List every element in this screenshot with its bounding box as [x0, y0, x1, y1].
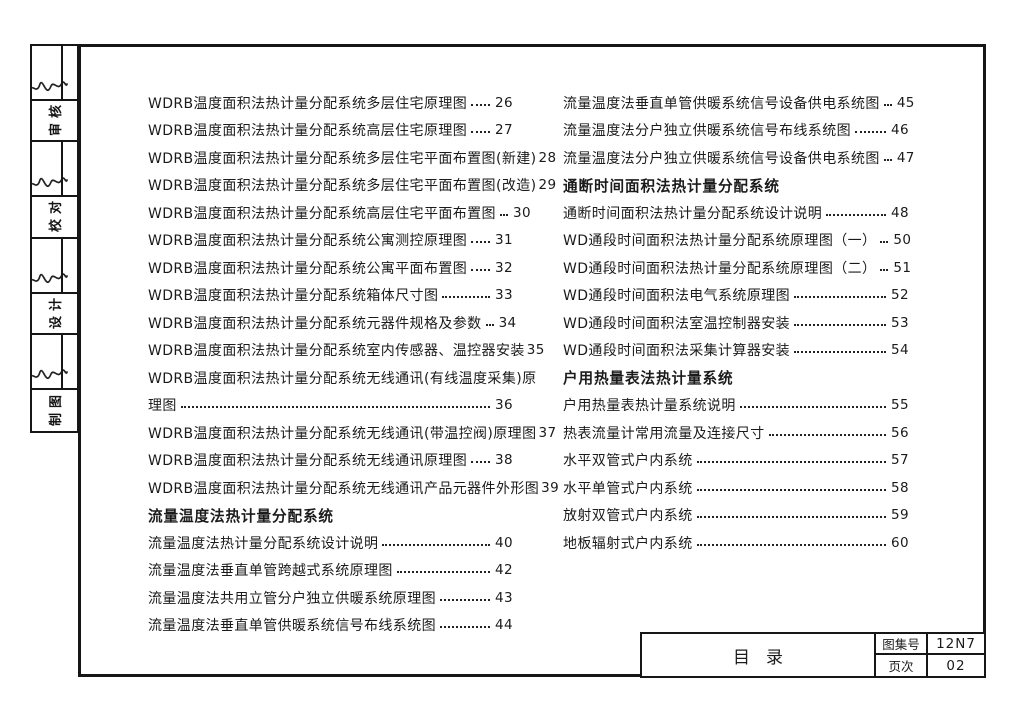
toc-page-number: 44 [493, 617, 513, 633]
stamp-cell [32, 335, 77, 390]
toc-row: WDRB温度面积法热计量分配系统公寓测控原理图 31 [148, 227, 513, 255]
toc-entry-title: WDRB温度面积法热计量分配系统公寓测控原理图 [148, 230, 467, 250]
toc-row: 流量温度法垂直单管供暖系统信号布线系统图 44 [148, 612, 513, 640]
dot-leader [855, 131, 886, 133]
toc-row: WD通段时间面积法室温控制器安装 53 [563, 309, 909, 337]
toc-entry-title: WDRB温度面积法热计量分配系统室内传感器、温控器安装 [148, 340, 525, 360]
dot-leader [884, 104, 892, 106]
toc-row: 流量温度法分户独立供暖系统信号布线系统图 46 [563, 117, 909, 145]
dot-leader [884, 159, 892, 161]
dot-leader [794, 324, 886, 326]
toc-entry-title: 流量温度法垂直单管跨越式系统原理图 [148, 560, 393, 580]
toc-row: 流量温度法热计量分配系统 [148, 502, 513, 530]
dot-leader [697, 516, 886, 518]
toc-entry-title: WDRB温度面积法热计量分配系统无线通讯(有线温度采集)原 [148, 368, 536, 388]
handwritten-signature [32, 252, 69, 278]
dot-leader [794, 351, 886, 353]
toc-column-right: 流量温度法垂直单管供暖系统信号设备供电系统图 45 流量温度法分户独立供暖系统信… [563, 89, 909, 557]
toc-row: 流量温度法垂直单管供暖系统信号设备供电系统图 45 [563, 89, 909, 117]
toc-row: WDRB温度面积法热计量分配系统无线通讯原理图 38 [148, 447, 513, 475]
atlas-number-value: 12N7 [928, 634, 984, 655]
dot-leader [697, 461, 886, 463]
toc-row: 户用热量表法热计量系统 [563, 364, 909, 392]
toc-entry-title: WDRB温度面积法热计量分配系统多层住宅平面布置图(改造) [148, 175, 536, 195]
dot-leader [471, 131, 490, 133]
toc-page-number: 35 [525, 342, 545, 358]
toc-entry-title: WDRB温度面积法热计量分配系统箱体尺寸图 [148, 285, 438, 305]
toc-row: 通断时间面积法热计量分配系统 [563, 172, 909, 200]
dot-leader [880, 269, 888, 271]
toc-page-number: 50 [891, 232, 911, 248]
dot-leader [500, 214, 508, 216]
toc-row: WD通段时间面积法采集计算器安装 54 [563, 337, 909, 365]
toc-row: 流量温度法共用立管分户独立供暖系统原理图 43 [148, 584, 513, 612]
toc-row: WDRB温度面积法热计量分配系统高层住宅平面布置图 30 [148, 199, 513, 227]
toc-row: 流量温度法垂直单管跨越式系统原理图 42 [148, 557, 513, 585]
toc-row: WDRB温度面积法热计量分配系统公寓平面布置图 32 [148, 254, 513, 282]
toc-entry-title: WDRB温度面积法热计量分配系统无线通讯原理图 [148, 450, 467, 470]
toc-entry-title: 通断时间面积法热计量分配系统设计说明 [563, 203, 822, 223]
stamp-cell [32, 142, 77, 197]
stamp-role-label: 设计 [45, 294, 64, 334]
dot-leader [794, 296, 886, 298]
toc-entry-title: 地板辐射式户内系统 [563, 533, 693, 553]
cell-divider [61, 142, 63, 195]
toc-page-number: 40 [493, 535, 513, 551]
toc-entry-title: WD通段时间面积法热计量分配系统原理图（一） [563, 230, 876, 250]
toc-page-number: 39 [539, 480, 559, 496]
signature-area [32, 335, 77, 388]
toc-entry-title: WDRB温度面积法热计量分配系统无线通讯产品元器件外形图 [148, 478, 539, 498]
toc-row: WDRB温度面积法热计量分配系统无线通讯产品元器件外形图 39 [148, 474, 513, 502]
toc-row: WD通段时间面积法电气系统原理图 52 [563, 282, 909, 310]
dot-leader [382, 544, 490, 546]
signature-area [32, 46, 77, 99]
toc-row: WD通段时间面积法热计量分配系统原理图（二） 51 [563, 254, 909, 282]
toc-page-number: 52 [889, 287, 909, 303]
toc-page-number: 33 [493, 287, 513, 303]
toc-page-number: 55 [889, 397, 909, 413]
toc-entry-title: WD通段时间面积法电气系统原理图 [563, 285, 790, 305]
toc-entry-title: WD通段时间面积法采集计算器安装 [563, 340, 790, 360]
stamp-strip: 审核 校对 [30, 44, 79, 433]
dot-leader [880, 241, 888, 243]
toc-entry-title: 户用热量表热计量系统说明 [563, 395, 736, 415]
toc-row: 流量温度法分户独立供暖系统信号设备供电系统图 47 [563, 144, 909, 172]
toc-page-number: 59 [889, 507, 909, 523]
dot-leader [471, 461, 490, 463]
toc-entry-title: 户用热量表法热计量系统 [563, 367, 733, 388]
toc-page-number: 45 [895, 95, 915, 111]
dot-leader [181, 406, 490, 408]
toc-entry-title: WDRB温度面积法热计量分配系统多层住宅平面布置图(新建) [148, 148, 536, 168]
toc-page-number: 34 [497, 315, 517, 331]
dot-leader [471, 241, 490, 243]
handwritten-signature [32, 348, 69, 374]
toc-entry-title: 流量温度法分户独立供暖系统信号布线系统图 [563, 120, 851, 140]
toc-entry-title: WDRB温度面积法热计量分配系统公寓平面布置图 [148, 258, 467, 278]
scanned-toc-page: 审核 校对 [0, 0, 1024, 716]
toc-column-left: WDRB温度面积法热计量分配系统多层住宅原理图 26 WDRB温度面积法热计量分… [148, 89, 513, 639]
signature-area [32, 142, 77, 195]
toc-row: 放射双管式户内系统 59 [563, 502, 909, 530]
stamp-cell: 制图 [32, 390, 77, 431]
toc-page-number: 47 [895, 150, 915, 166]
toc-entry-title: 水平单管式户内系统 [563, 478, 693, 498]
toc-entry-title: 流量温度法分户独立供暖系统信号设备供电系统图 [563, 148, 880, 168]
stamp-cell: 校对 [32, 197, 77, 238]
toc-row: WDRB温度面积法热计量分配系统多层住宅原理图 26 [148, 89, 513, 117]
toc-entry-title: 水平双管式户内系统 [563, 450, 693, 470]
toc-page-number: 58 [889, 480, 909, 496]
toc-page-number: 43 [493, 590, 513, 606]
sheet-title: 目录 [642, 634, 876, 676]
dot-leader [471, 104, 490, 106]
toc-entry-title: WD通段时间面积法室温控制器安装 [563, 313, 790, 333]
title-block: 目录 图集号 12N7 页次 02 [640, 632, 986, 678]
toc-entry-title: WDRB温度面积法热计量分配系统元器件规格及参数 [148, 313, 482, 333]
toc-entry-title: 流量温度法共用立管分户独立供暖系统原理图 [148, 588, 436, 608]
dot-leader [697, 489, 886, 491]
toc-row: 热表流量计常用流量及连接尺寸 56 [563, 419, 909, 447]
atlas-number-label: 图集号 [876, 634, 928, 655]
toc-page-number: 53 [889, 315, 909, 331]
toc-page-number: 26 [493, 95, 513, 111]
toc-page-number: 27 [493, 122, 513, 138]
handwritten-signature [32, 156, 69, 182]
toc-page-number: 48 [889, 205, 909, 221]
stamp-cell: 设计 [32, 294, 77, 335]
toc-row: 水平双管式户内系统 57 [563, 447, 909, 475]
toc-entry-title: 热表流量计常用流量及连接尺寸 [563, 423, 765, 443]
page-number-value: 02 [928, 655, 984, 676]
page-number-label: 页次 [876, 655, 928, 676]
dot-leader [440, 599, 490, 601]
toc-entry-title: WDRB温度面积法热计量分配系统高层住宅平面布置图 [148, 203, 496, 223]
toc-page-number: 28 [536, 150, 556, 166]
toc-row: WDRB温度面积法热计量分配系统元器件规格及参数 34 [148, 309, 513, 337]
toc-page-number: 54 [889, 342, 909, 358]
toc-page-number: 29 [536, 177, 556, 193]
toc-entry-title: WD通段时间面积法热计量分配系统原理图（二） [563, 258, 876, 278]
toc-entry-title: 通断时间面积法热计量分配系统 [563, 175, 780, 196]
dot-leader [740, 406, 886, 408]
cell-divider [61, 46, 63, 99]
stamp-cell [32, 46, 77, 101]
toc-page-number: 57 [889, 452, 909, 468]
toc-row: 理图 36 [148, 392, 513, 420]
toc-row: WDRB温度面积法热计量分配系统无线通讯(带温控阀)原理图 37 [148, 419, 513, 447]
toc-row: WDRB温度面积法热计量分配系统无线通讯(有线温度采集)原 [148, 364, 513, 392]
toc-page-number: 30 [511, 205, 531, 221]
toc-row: WD通段时间面积法热计量分配系统原理图（一） 50 [563, 227, 909, 255]
toc-entry-title: WDRB温度面积法热计量分配系统高层住宅原理图 [148, 120, 467, 140]
stamp-role-label: 审核 [45, 101, 64, 141]
toc-row: WDRB温度面积法热计量分配系统高层住宅原理图 27 [148, 117, 513, 145]
toc-entry-title: WDRB温度面积法热计量分配系统多层住宅原理图 [148, 93, 467, 113]
toc-page-number: 46 [889, 122, 909, 138]
dot-leader [826, 214, 886, 216]
toc-page-number: 31 [493, 232, 513, 248]
toc-page-number: 38 [493, 452, 513, 468]
signature-area [32, 239, 77, 292]
dot-leader [442, 296, 490, 298]
toc-page-number: 56 [889, 425, 909, 441]
toc-entry-title: 流量温度法垂直单管供暖系统信号设备供电系统图 [563, 93, 880, 113]
dot-leader [486, 324, 494, 326]
stamp-role-label: 制图 [45, 390, 64, 431]
toc-row: WDRB温度面积法热计量分配系统多层住宅平面布置图(新建) 28 [148, 144, 513, 172]
toc-row: WDRB温度面积法热计量分配系统箱体尺寸图 33 [148, 282, 513, 310]
stamp-cell: 审核 [32, 101, 77, 142]
handwritten-signature [32, 60, 69, 86]
dot-leader [769, 434, 886, 436]
toc-row: 水平单管式户内系统 58 [563, 474, 909, 502]
cell-divider [61, 335, 63, 388]
toc-page-number: 51 [891, 260, 911, 276]
dot-leader [471, 269, 490, 271]
stamp-cell [32, 239, 77, 294]
toc-entry-title: WDRB温度面积法热计量分配系统无线通讯(带温控阀)原理图 [148, 423, 536, 443]
toc-page-number: 37 [536, 425, 556, 441]
dot-leader [440, 626, 490, 628]
toc-row: 地板辐射式户内系统 60 [563, 529, 909, 557]
dot-leader [697, 544, 886, 546]
toc-entry-title: 流量温度法热计量分配系统 [148, 505, 334, 526]
toc-entry-title: 流量温度法垂直单管供暖系统信号布线系统图 [148, 615, 436, 635]
toc-entry-title: 放射双管式户内系统 [563, 505, 693, 525]
dot-leader [397, 571, 490, 573]
toc-row: 户用热量表热计量系统说明 55 [563, 392, 909, 420]
cell-divider [61, 239, 63, 292]
toc-page-number: 42 [493, 562, 513, 578]
toc-row: WDRB温度面积法热计量分配系统室内传感器、温控器安装 35 [148, 337, 513, 365]
toc-row: 通断时间面积法热计量分配系统设计说明 48 [563, 199, 909, 227]
toc-page-number: 36 [493, 397, 513, 413]
toc-entry-title: 流量温度法热计量分配系统设计说明 [148, 533, 378, 553]
toc-row: 流量温度法热计量分配系统设计说明 40 [148, 529, 513, 557]
toc-entry-title: 理图 [148, 395, 177, 415]
toc-row: WDRB温度面积法热计量分配系统多层住宅平面布置图(改造) 29 [148, 172, 513, 200]
toc-page-number: 60 [889, 535, 909, 551]
toc-page-number: 32 [493, 260, 513, 276]
stamp-role-label: 校对 [45, 197, 64, 237]
